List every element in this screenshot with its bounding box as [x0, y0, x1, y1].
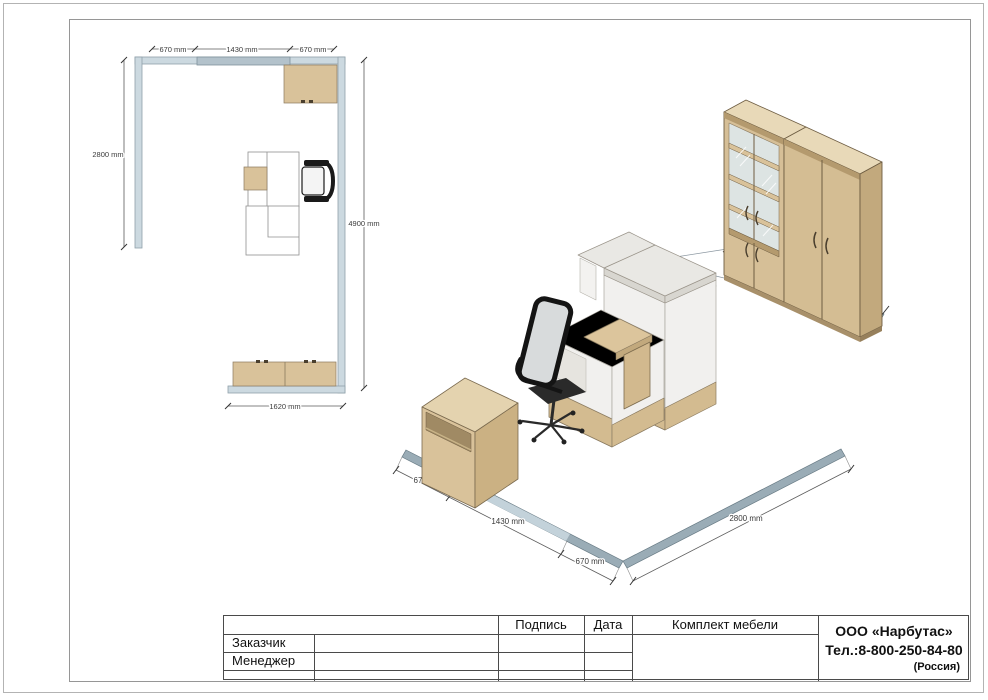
plan-dim-top-left: 670 mm [159, 45, 186, 54]
plan-cabinet-bottom [233, 362, 336, 386]
tb-header-signature: Подпись [498, 617, 584, 632]
tb-header-date: Дата [584, 617, 632, 632]
plan-dim-right: 4900 mm [348, 219, 379, 228]
iso-small-cabinet [422, 378, 518, 508]
drawing-sheet: 670 mm 1430 mm 670 mm 2800 mm 4900 mm 16… [0, 0, 988, 700]
plan-cabinet-handle [256, 360, 260, 363]
plan-desk-lower [246, 206, 299, 255]
iso-wall-strip-b [623, 449, 845, 568]
iso-dim-wall-a-seg3: 670 mm [576, 557, 605, 566]
plan-cabinet-top-right [284, 65, 337, 103]
tb-vline-1 [314, 634, 315, 681]
iso-tall-cabinets [724, 100, 882, 342]
iso-dim-wall-a-seg2: 1430 mm [491, 517, 525, 526]
floor-plan-view: 670 mm 1430 mm 670 mm 2800 mm 4900 mm 16… [60, 20, 400, 420]
tb-hline-3 [224, 670, 632, 671]
plan-dim-left: 2800 mm [92, 150, 123, 159]
tb-company-name: ООО «Нарбутас» [818, 623, 970, 639]
plan-wall-top-mid-segment [197, 57, 290, 65]
plan-dim-top-right: 670 mm [299, 45, 326, 54]
tb-company-country: (Россия) [818, 661, 960, 673]
plan-cabinet-handle [304, 360, 308, 363]
iso-view: 670 mm 1430 mm 670 mm 2800 mm [385, 85, 900, 590]
plan-cabinet-handle [312, 360, 316, 363]
plan-cabinet-handle [264, 360, 268, 363]
plan-furniture [233, 65, 337, 386]
plan-chair [302, 160, 333, 202]
tb-company-phone: Тел.:8-800-250-84-80 [818, 642, 970, 658]
plan-wall-left [135, 57, 142, 248]
iso-wardrobe-side [860, 162, 882, 337]
plan-cabinet-handle [301, 100, 305, 103]
tb-product: Комплект мебели [632, 617, 818, 632]
plan-wall-bottom [228, 386, 345, 393]
plan-dim-top-mid: 1430 mm [226, 45, 257, 54]
title-block: Подпись Дата Комплект мебели Заказчик Ме… [223, 615, 969, 680]
plan-cabinet-handle [309, 100, 313, 103]
tb-row-customer: Заказчик [232, 635, 285, 650]
plan-wall-right [338, 57, 345, 393]
plan-dim-bottom: 1620 mm [269, 402, 300, 411]
tb-row-manager: Менеджер [232, 653, 295, 668]
plan-walls [135, 57, 345, 393]
plan-desk-pedestal [244, 167, 267, 190]
iso-dim-wall-b: 2800 mm [729, 514, 763, 523]
